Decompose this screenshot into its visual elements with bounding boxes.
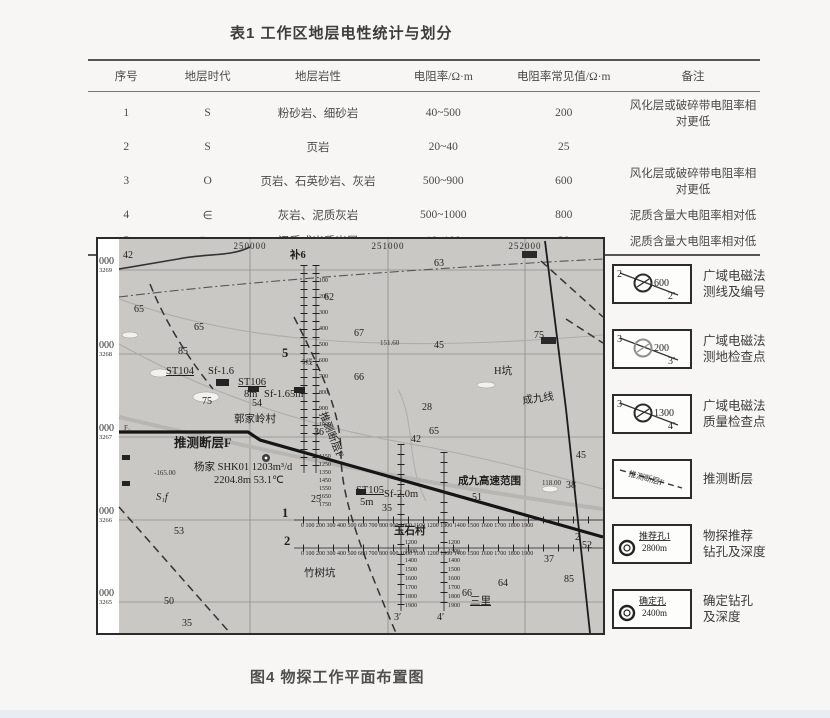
y-axis-label: 0003265: [99, 589, 119, 607]
y-axis-label: 0003269: [99, 257, 119, 275]
station-number-row: 0 100 200 300 400 500 600 700 800 900 10…: [301, 551, 533, 557]
svg-text:4′: 4′: [668, 421, 675, 432]
table-row: 3O页岩、石英砂岩、灰岩500~900600风化层或破碎带电阻率相对更低: [88, 160, 760, 202]
svg-text:2′: 2′: [668, 291, 675, 302]
map-label: 5线: [302, 359, 313, 366]
svg-text:2400m: 2400m: [642, 608, 667, 618]
table-cell: 4: [88, 202, 164, 228]
map-labels: 2500002510002520000003269000326800032670…: [98, 239, 603, 633]
y-axis-label: 0003267: [99, 424, 119, 442]
map-label: 5: [282, 347, 288, 360]
map-label: 28: [422, 403, 432, 413]
table-cell: 25: [501, 134, 626, 160]
legend-symbol-box: 32003′: [612, 329, 692, 369]
map-label: 65: [194, 323, 204, 333]
table-cell: O: [164, 160, 250, 202]
map-label: 75: [534, 331, 544, 341]
bottom-bar: [0, 710, 830, 718]
map-label: 65: [429, 427, 439, 437]
table-cell: 200: [501, 92, 626, 135]
map: 2500002510002520000003269000326800032670…: [96, 237, 605, 635]
table-cell: S: [164, 134, 250, 160]
map-label: 151.60: [380, 340, 399, 347]
table-cell: 泥质含量大电阻率相对低: [626, 228, 760, 255]
legend-item: 26002′广域电磁法测线及编号: [612, 264, 827, 304]
map-label: 54: [252, 399, 262, 409]
legend-symbol-box: 确定孔2400m: [612, 589, 692, 629]
legend-item: 313004′广域电磁法质量检查点: [612, 394, 827, 434]
map-label: 35: [182, 619, 192, 629]
station-number-row: 0 100 200 300 400 500 600 700 800 900 10…: [301, 523, 533, 529]
station-number-column: 12001300140015001600170018001900: [448, 539, 460, 611]
table-cell: [626, 134, 760, 160]
table-title: 表1 工作区地层电性统计与划分: [230, 22, 760, 43]
legend-symbol-box: 313004′: [612, 394, 692, 434]
legend-item: 32003′广域电磁法测地检查点: [612, 329, 827, 369]
map-label: 补6: [290, 251, 306, 262]
svg-text:3: 3: [617, 399, 622, 410]
map-label: 竹树坑: [304, 569, 336, 580]
x-axis-label: 252000: [503, 241, 547, 251]
table-cell: 1: [88, 92, 164, 135]
station-number-column: 1150125013501450155016501750: [319, 453, 331, 509]
map-label: 5m: [360, 498, 373, 509]
map-label: 66: [354, 373, 364, 383]
station-number-column: 12001300140015001600170018001900: [405, 539, 417, 611]
svg-text:200: 200: [654, 343, 669, 354]
table-cell: 3: [88, 160, 164, 202]
table-block: 表1 工作区地层电性统计与划分 序号地层时代地层岩性电阻率/Ω·m电阻率常见值/…: [88, 22, 760, 256]
map-label: 2204.8m 53.1℃: [214, 476, 284, 487]
map-label: 4′: [437, 613, 444, 623]
map-label: Sf-1.6: [208, 367, 234, 378]
y-axis-label: 0003266: [99, 507, 119, 525]
table-row: 4∈灰岩、泥质灰岩500~1000800泥质含量大电阻率相对低: [88, 202, 760, 228]
paper-page: 表1 工作区地层电性统计与划分 序号地层时代地层岩性电阻率/Ω·m电阻率常见值/…: [0, 0, 830, 718]
x-axis-label: 250000: [228, 241, 272, 251]
table-header-cell: 地层岩性: [251, 60, 385, 92]
table-row: 2S页岩20~4025: [88, 134, 760, 160]
map-label: 3′: [394, 613, 401, 623]
map-legend: 26002′广域电磁法测线及编号32003′广域电磁法测地检查点313004′广…: [612, 264, 827, 629]
map-label: 35: [382, 504, 392, 514]
map-label: 63: [434, 259, 444, 269]
map-label: 42: [123, 251, 133, 261]
map-label: 三里: [470, 597, 491, 608]
map-label: F₁: [124, 425, 130, 432]
map-label: 45: [576, 451, 586, 461]
table-header-row: 序号地层时代地层岩性电阻率/Ω·m电阻率常见值/Ω·m备注: [88, 60, 760, 92]
map-label: 成九线: [522, 393, 555, 408]
map-label: 52: [582, 541, 592, 551]
map-label: 85: [564, 575, 574, 585]
svg-text:600: 600: [654, 278, 669, 289]
map-label: 85: [178, 347, 188, 357]
map-label: 1: [282, 507, 288, 520]
map-label: Sf-2.0m: [384, 490, 418, 501]
svg-text:1300: 1300: [654, 408, 674, 419]
table-row: 1S粉砂岩、细砂岩40~500200风化层或破碎带电阻率相对更低: [88, 92, 760, 135]
table-header-cell: 地层时代: [164, 60, 250, 92]
map-label: 郭家岭村: [234, 415, 276, 426]
map-label: 2: [284, 535, 290, 548]
table-cell: 600: [501, 160, 626, 202]
station-number-column: 1002003004005006007008009001000: [319, 273, 331, 433]
legend-item: 推测断层F推测断层: [612, 459, 827, 499]
table-cell: 40~500: [385, 92, 501, 135]
legend-label: 广域电磁法质量检查点: [703, 398, 766, 430]
table-cell: 风化层或破碎带电阻率相对更低: [626, 160, 760, 202]
map-label: H坑: [494, 367, 512, 378]
legend-symbol-box: 推测断层F: [612, 459, 692, 499]
y-axis-label: 0003268: [99, 341, 119, 359]
table-cell: 灰岩、泥质灰岩: [251, 202, 385, 228]
legend-item: 推荐孔12800m物探推荐钻孔及深度: [612, 524, 827, 564]
map-label: S₁f: [156, 493, 168, 504]
svg-text:2800m: 2800m: [642, 543, 667, 553]
table-header-cell: 序号: [88, 60, 164, 92]
map-label: 成九高速范围: [458, 477, 521, 488]
map-label: 38: [566, 481, 576, 491]
map-label: ST106: [238, 378, 266, 389]
legend-label: 物探推荐钻孔及深度: [703, 528, 766, 560]
map-label: 37: [544, 555, 554, 565]
legend-label: 广域电磁法测线及编号: [703, 268, 766, 300]
figure-caption: 图4 物探工作平面布置图: [250, 666, 425, 687]
map-label: 2: [575, 533, 580, 543]
legend-symbol-box: 推荐孔12800m: [612, 524, 692, 564]
legend-item: 确定孔2400m确定钻孔及深度: [612, 589, 827, 629]
map-label: 42: [411, 435, 421, 445]
map-label: 45: [434, 341, 444, 351]
svg-text:推测断层F: 推测断层F: [627, 468, 665, 487]
map-label: 51: [472, 493, 482, 503]
map-label: ST104: [166, 367, 194, 378]
map-label: ST105: [356, 486, 384, 497]
table-cell: 2: [88, 134, 164, 160]
table-cell: 泥质含量大电阻率相对低: [626, 202, 760, 228]
map-label: 65: [134, 305, 144, 315]
map-label: 64: [498, 579, 508, 589]
legend-label: 确定钻孔及深度: [703, 593, 753, 625]
svg-text:3′: 3′: [668, 356, 675, 367]
table-cell: 页岩: [251, 134, 385, 160]
table-cell: 风化层或破碎带电阻率相对更低: [626, 92, 760, 135]
map-label: Sf-1.65m: [264, 390, 303, 401]
svg-text:确定孔: 确定孔: [639, 595, 666, 606]
strata-table: 序号地层时代地层岩性电阻率/Ω·m电阻率常见值/Ω·m备注 1S粉砂岩、细砂岩4…: [88, 59, 760, 256]
table-cell: 500~900: [385, 160, 501, 202]
table-cell: 500~1000: [385, 202, 501, 228]
table-cell: S: [164, 92, 250, 135]
map-label: 50: [164, 597, 174, 607]
table-header-cell: 电阻率常见值/Ω·m: [501, 60, 626, 92]
map-label: 118.00: [542, 480, 561, 487]
table-cell: 20~40: [385, 134, 501, 160]
map-label: 推测断层F: [174, 437, 232, 450]
map-label: 杨家 SHK01 1203m³/d: [194, 463, 292, 474]
x-axis-label: 251000: [366, 241, 410, 251]
svg-text:3: 3: [617, 334, 622, 345]
legend-symbol-box: 26002′: [612, 264, 692, 304]
table-cell: ∈: [164, 202, 250, 228]
table-cell: 页岩、石英砂岩、灰岩: [251, 160, 385, 202]
svg-text:推荐孔1: 推荐孔1: [639, 530, 671, 541]
legend-label: 广域电磁法测地检查点: [703, 333, 766, 365]
table-header-cell: 备注: [626, 60, 760, 92]
table-cell: 粉砂岩、细砂岩: [251, 92, 385, 135]
table-header-cell: 电阻率/Ω·m: [385, 60, 501, 92]
map-label: 53: [174, 527, 184, 537]
map-label: 66: [462, 589, 472, 599]
map-label: -165.00: [154, 470, 176, 477]
map-label: 67: [354, 329, 364, 339]
legend-label: 推测断层: [703, 471, 753, 487]
map-label: 75: [202, 397, 212, 407]
svg-text:2: 2: [617, 269, 622, 280]
table-cell: 800: [501, 202, 626, 228]
